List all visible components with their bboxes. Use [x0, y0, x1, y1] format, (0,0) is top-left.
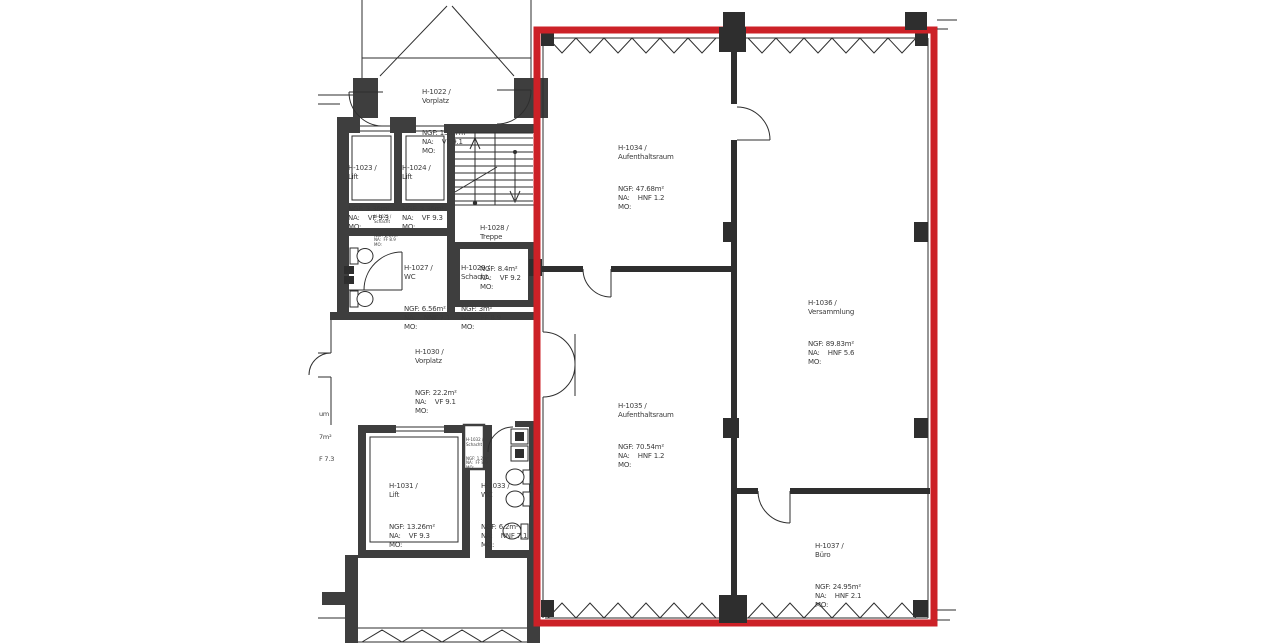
room-label-h1024: H-1024 /Lift NGF: 3.36m²NA: VF 9.3MO: [402, 146, 444, 241]
toilet-icon [350, 291, 373, 307]
pillar [719, 595, 747, 623]
pillar [541, 600, 554, 617]
room-label-h1025: H-1025 /Schacht NGF: 2.09m²NA: FF 8.9MO: [374, 206, 399, 252]
room-label-h1036: H-1036 /Versammlung NGF: 89.83m²NA: HNF … [808, 281, 854, 376]
room-label-h1033: H-1033 /WC NGF: 6.2m²NA: NNF 7.1MO: [481, 464, 527, 559]
toilet-icon [350, 248, 373, 264]
window-symbol [748, 38, 916, 53]
room-label-h1030: H-1030 /Vorplatz NGF: 22.2m²NA: VF 9.1MO… [415, 330, 457, 425]
pillar [915, 33, 928, 46]
room-label-partial-left: um 7m² F 7.3 [319, 396, 334, 471]
door-swing-h1036 [737, 107, 770, 140]
stair-up-arrow [470, 138, 480, 205]
pillar [914, 418, 928, 438]
room-label-h1037: H-1037 /Büro NGF: 24.95m²NA: HNF 2.1MO: [815, 524, 861, 619]
room-label-h1029: H-1029 /Schacht NGF: 3m²NA: FF 8.9MO: [461, 246, 501, 341]
pillar [719, 27, 746, 52]
sink-icon [344, 266, 354, 274]
sink-icon [511, 429, 528, 444]
over-red [543, 12, 957, 623]
pillar [723, 222, 737, 242]
window-symbol [548, 38, 716, 53]
floor-plan-drawing [0, 0, 1280, 643]
entrance-vestibule-bottom [318, 555, 540, 643]
highlighted-zone-walls [529, 33, 930, 618]
wall-stub [723, 12, 745, 30]
stair-down-arrow [510, 150, 520, 202]
wall-stub [905, 12, 927, 30]
pillar [723, 418, 739, 438]
pillar [913, 600, 928, 617]
double-door-swing-h1035 [543, 332, 575, 397]
window-symbol [362, 630, 522, 642]
room-label-h1027: H-1027 /WC NGF: 6.56m²NA: NNF 7.1MO: [404, 246, 450, 341]
door-swing-h1035 [583, 269, 611, 297]
sink-icon [511, 446, 528, 461]
room-label-h1035: H-1035 /Aufenthaltsraum NGF: 70.54m²NA: … [618, 384, 674, 479]
pillar [914, 222, 928, 242]
window-symbol [548, 603, 716, 618]
room-label-h1031: H-1031 /Lift NGF: 13.26m²NA: VF 9.3MO: [389, 464, 435, 559]
door-swing-h1037 [758, 491, 790, 523]
room-label-h1034: H-1034 /Aufenthaltsraum NGF: 47.68m²NA: … [618, 126, 674, 221]
floor-plan: H-1022 /Vorplatz NGF: 13.07m²NA: VF 9.1M… [0, 0, 1280, 643]
pillar [541, 33, 554, 46]
sink-icon [344, 276, 354, 284]
